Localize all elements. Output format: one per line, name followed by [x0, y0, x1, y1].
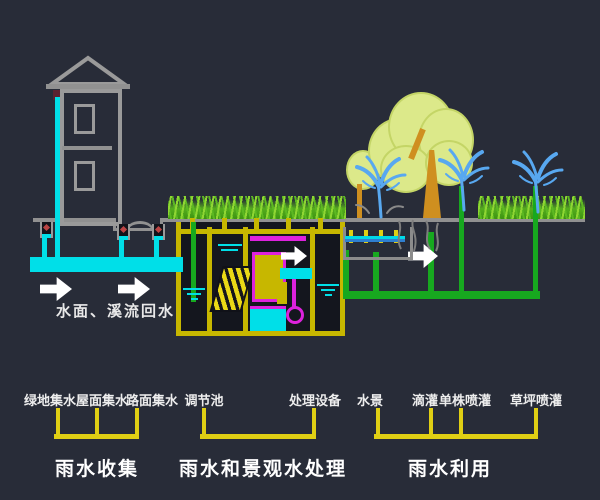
flow-arrow-icon	[118, 277, 150, 301]
legend-item-label: 草坪喷灌	[510, 390, 562, 409]
legend-group-title: 雨水收集	[55, 454, 139, 481]
house-roof	[48, 54, 128, 88]
legend-bracket-bar	[200, 434, 316, 439]
return-water-annotation: 水面、溪流回水	[56, 300, 175, 321]
legend-item-label: 滴灌	[412, 390, 438, 409]
legend-bracket-tick	[312, 408, 316, 436]
legend-bracket-tick	[202, 408, 206, 436]
legend-bracket-tick	[56, 408, 60, 436]
facility-inlet-stub	[318, 218, 323, 230]
legend-item-label: 单株喷灌	[439, 390, 491, 409]
drain-mark	[155, 226, 162, 233]
drain-inlet-icon	[40, 222, 53, 238]
facility-inlet-stub	[286, 218, 291, 230]
drain-inlet-icon	[117, 224, 130, 240]
equipment-top-bar	[250, 236, 306, 241]
drain-inlet-icon	[152, 224, 165, 240]
legend-item-label: 屋面集水	[76, 390, 128, 409]
house-floor-line	[62, 146, 112, 150]
legend-group-title: 雨水利用	[408, 454, 492, 481]
clear-water-pool	[250, 306, 286, 331]
rainwater-system-diagram: 水面、溪流回水	[0, 0, 600, 500]
water-surface-mark	[221, 249, 238, 251]
pump-motor-box	[277, 282, 287, 304]
drain-riser-pipe	[42, 238, 47, 259]
legend-item-label: 绿地集水	[24, 390, 76, 409]
pump-icon	[286, 306, 304, 324]
legend-bracket-tick	[376, 408, 380, 436]
legend-bracket-tick	[95, 408, 99, 436]
sprinkler-spray-icon	[436, 146, 492, 214]
facility-wall-1	[207, 227, 212, 331]
house-window-lower	[74, 161, 95, 191]
pump-riser-pipe	[292, 279, 296, 307]
treatment-facility	[176, 222, 345, 336]
drain-mark	[120, 226, 127, 233]
legend-item-label: 水景	[357, 390, 383, 409]
legend-bracket-tick	[534, 408, 538, 436]
facility-cover	[181, 229, 340, 234]
fountain-spray-icon	[350, 153, 412, 221]
sprinkler-spray-icon	[510, 148, 566, 216]
road-bump	[126, 221, 154, 232]
facility-floor	[176, 331, 345, 336]
facility-inlet-stub	[254, 218, 259, 230]
flow-arrow-icon	[40, 277, 72, 301]
water-level-icon	[317, 284, 339, 299]
legend-item-label: 调节池	[184, 390, 223, 409]
legend-bracket-tick	[429, 408, 433, 436]
facility-inlet-stub	[222, 218, 227, 230]
collection-main-pipe	[30, 257, 183, 272]
legend-bracket-tick	[135, 408, 139, 436]
legend-bracket-tick	[459, 408, 463, 436]
roof-downpipe	[55, 97, 60, 269]
facility-wall-3	[310, 227, 315, 331]
outlet-pipe	[280, 268, 312, 279]
legend-group-title: 雨水和景观水处理	[179, 454, 347, 481]
legend-bracket-bar	[54, 434, 139, 439]
drain-mark	[43, 224, 50, 231]
tree-roots	[393, 219, 445, 253]
water-surface-mark	[218, 244, 242, 246]
legend-item-label: 路面集水	[126, 390, 178, 409]
legend-item-label: 处理设备	[289, 390, 341, 409]
facility-wall-left	[176, 222, 181, 336]
grass-strip-over-facility	[168, 196, 346, 219]
house-window-upper	[74, 104, 95, 134]
water-level-icon	[183, 288, 205, 303]
legend-bracket-bar	[374, 434, 538, 439]
